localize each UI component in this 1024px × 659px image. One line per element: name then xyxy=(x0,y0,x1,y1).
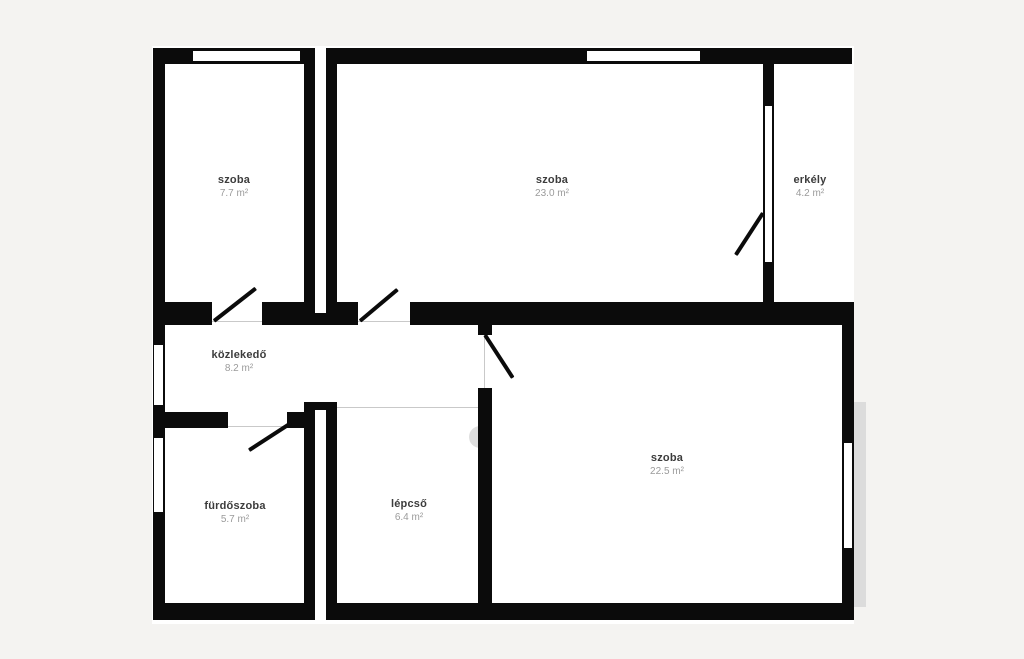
window-room3-right xyxy=(844,443,852,548)
room-label-szoba-3: szoba 22.5 m² xyxy=(650,452,684,477)
room-area: 5.7 m² xyxy=(204,514,265,525)
room-label-szoba-1: szoba 7.7 m² xyxy=(218,174,250,199)
wall-outer-bottom xyxy=(153,603,854,620)
room-area: 6.4 m² xyxy=(391,512,427,523)
room-label-kozlekedo: közlekedő 8.2 m² xyxy=(212,349,267,374)
window-room2-top xyxy=(587,51,700,61)
wall-stairs-left xyxy=(326,408,337,620)
window-balcony-door xyxy=(765,106,772,262)
window-hallway-left xyxy=(154,345,163,405)
room-area: 23.0 m² xyxy=(535,188,569,199)
plan-base xyxy=(152,46,854,624)
floor-plan: szoba 7.7 m² szoba 23.0 m² erkély 4.2 m²… xyxy=(0,0,1024,659)
room-name: szoba xyxy=(650,452,684,464)
wall-slit-upper xyxy=(315,46,326,313)
room-label-erkely: erkély 4.2 m² xyxy=(793,174,826,199)
room-name: lépcső xyxy=(391,498,427,510)
window-room1-top xyxy=(193,51,300,61)
window-bathroom-left xyxy=(154,438,163,512)
threshold-line-bathroom xyxy=(228,426,287,427)
room-name: közlekedő xyxy=(212,349,267,361)
wall-room2-left xyxy=(326,48,337,325)
room-label-furdoszoba: fürdőszoba 5.7 m² xyxy=(204,500,265,525)
threshold-line-room2 xyxy=(358,321,410,322)
room-name: szoba xyxy=(218,174,250,186)
room-area: 4.2 m² xyxy=(793,188,826,199)
room-name: fürdőszoba xyxy=(204,500,265,512)
room-label-szoba-2: szoba 23.0 m² xyxy=(535,174,569,199)
opening-line-stairs xyxy=(337,407,478,408)
wall-hall-room-lower xyxy=(478,388,492,620)
room-label-lepcso: lépcső 6.4 m² xyxy=(391,498,427,523)
threshold-line-room1 xyxy=(212,321,262,322)
room-area: 22.5 m² xyxy=(650,466,684,477)
room-area: 8.2 m² xyxy=(212,363,267,374)
wall-slit-lower xyxy=(315,410,326,622)
wall-outer-left xyxy=(153,48,165,620)
threshold-line-room3-door xyxy=(484,335,485,388)
wall-shadow xyxy=(853,402,866,607)
wall-bathroom-right xyxy=(304,402,315,620)
room-area: 7.7 m² xyxy=(218,188,250,199)
wall-room1-right xyxy=(304,48,315,325)
room-name: szoba xyxy=(535,174,569,186)
room-name: erkély xyxy=(793,174,826,186)
